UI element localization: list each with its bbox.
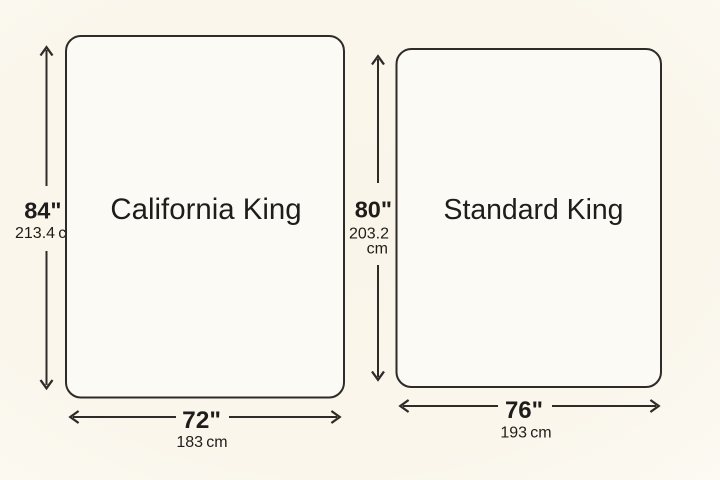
svg-text:California King: California King [110, 193, 301, 226]
svg-text:cm: cm [367, 241, 388, 258]
svg-text:Standard King: Standard King [444, 194, 624, 226]
svg-text:80": 80" [355, 196, 392, 222]
svg-text:84": 84" [24, 198, 61, 224]
svg-text:72": 72" [182, 407, 221, 434]
svg-text:76": 76" [505, 397, 543, 424]
svg-text:183 cm: 183 cm [176, 434, 227, 451]
svg-text:193 cm: 193 cm [500, 425, 551, 442]
